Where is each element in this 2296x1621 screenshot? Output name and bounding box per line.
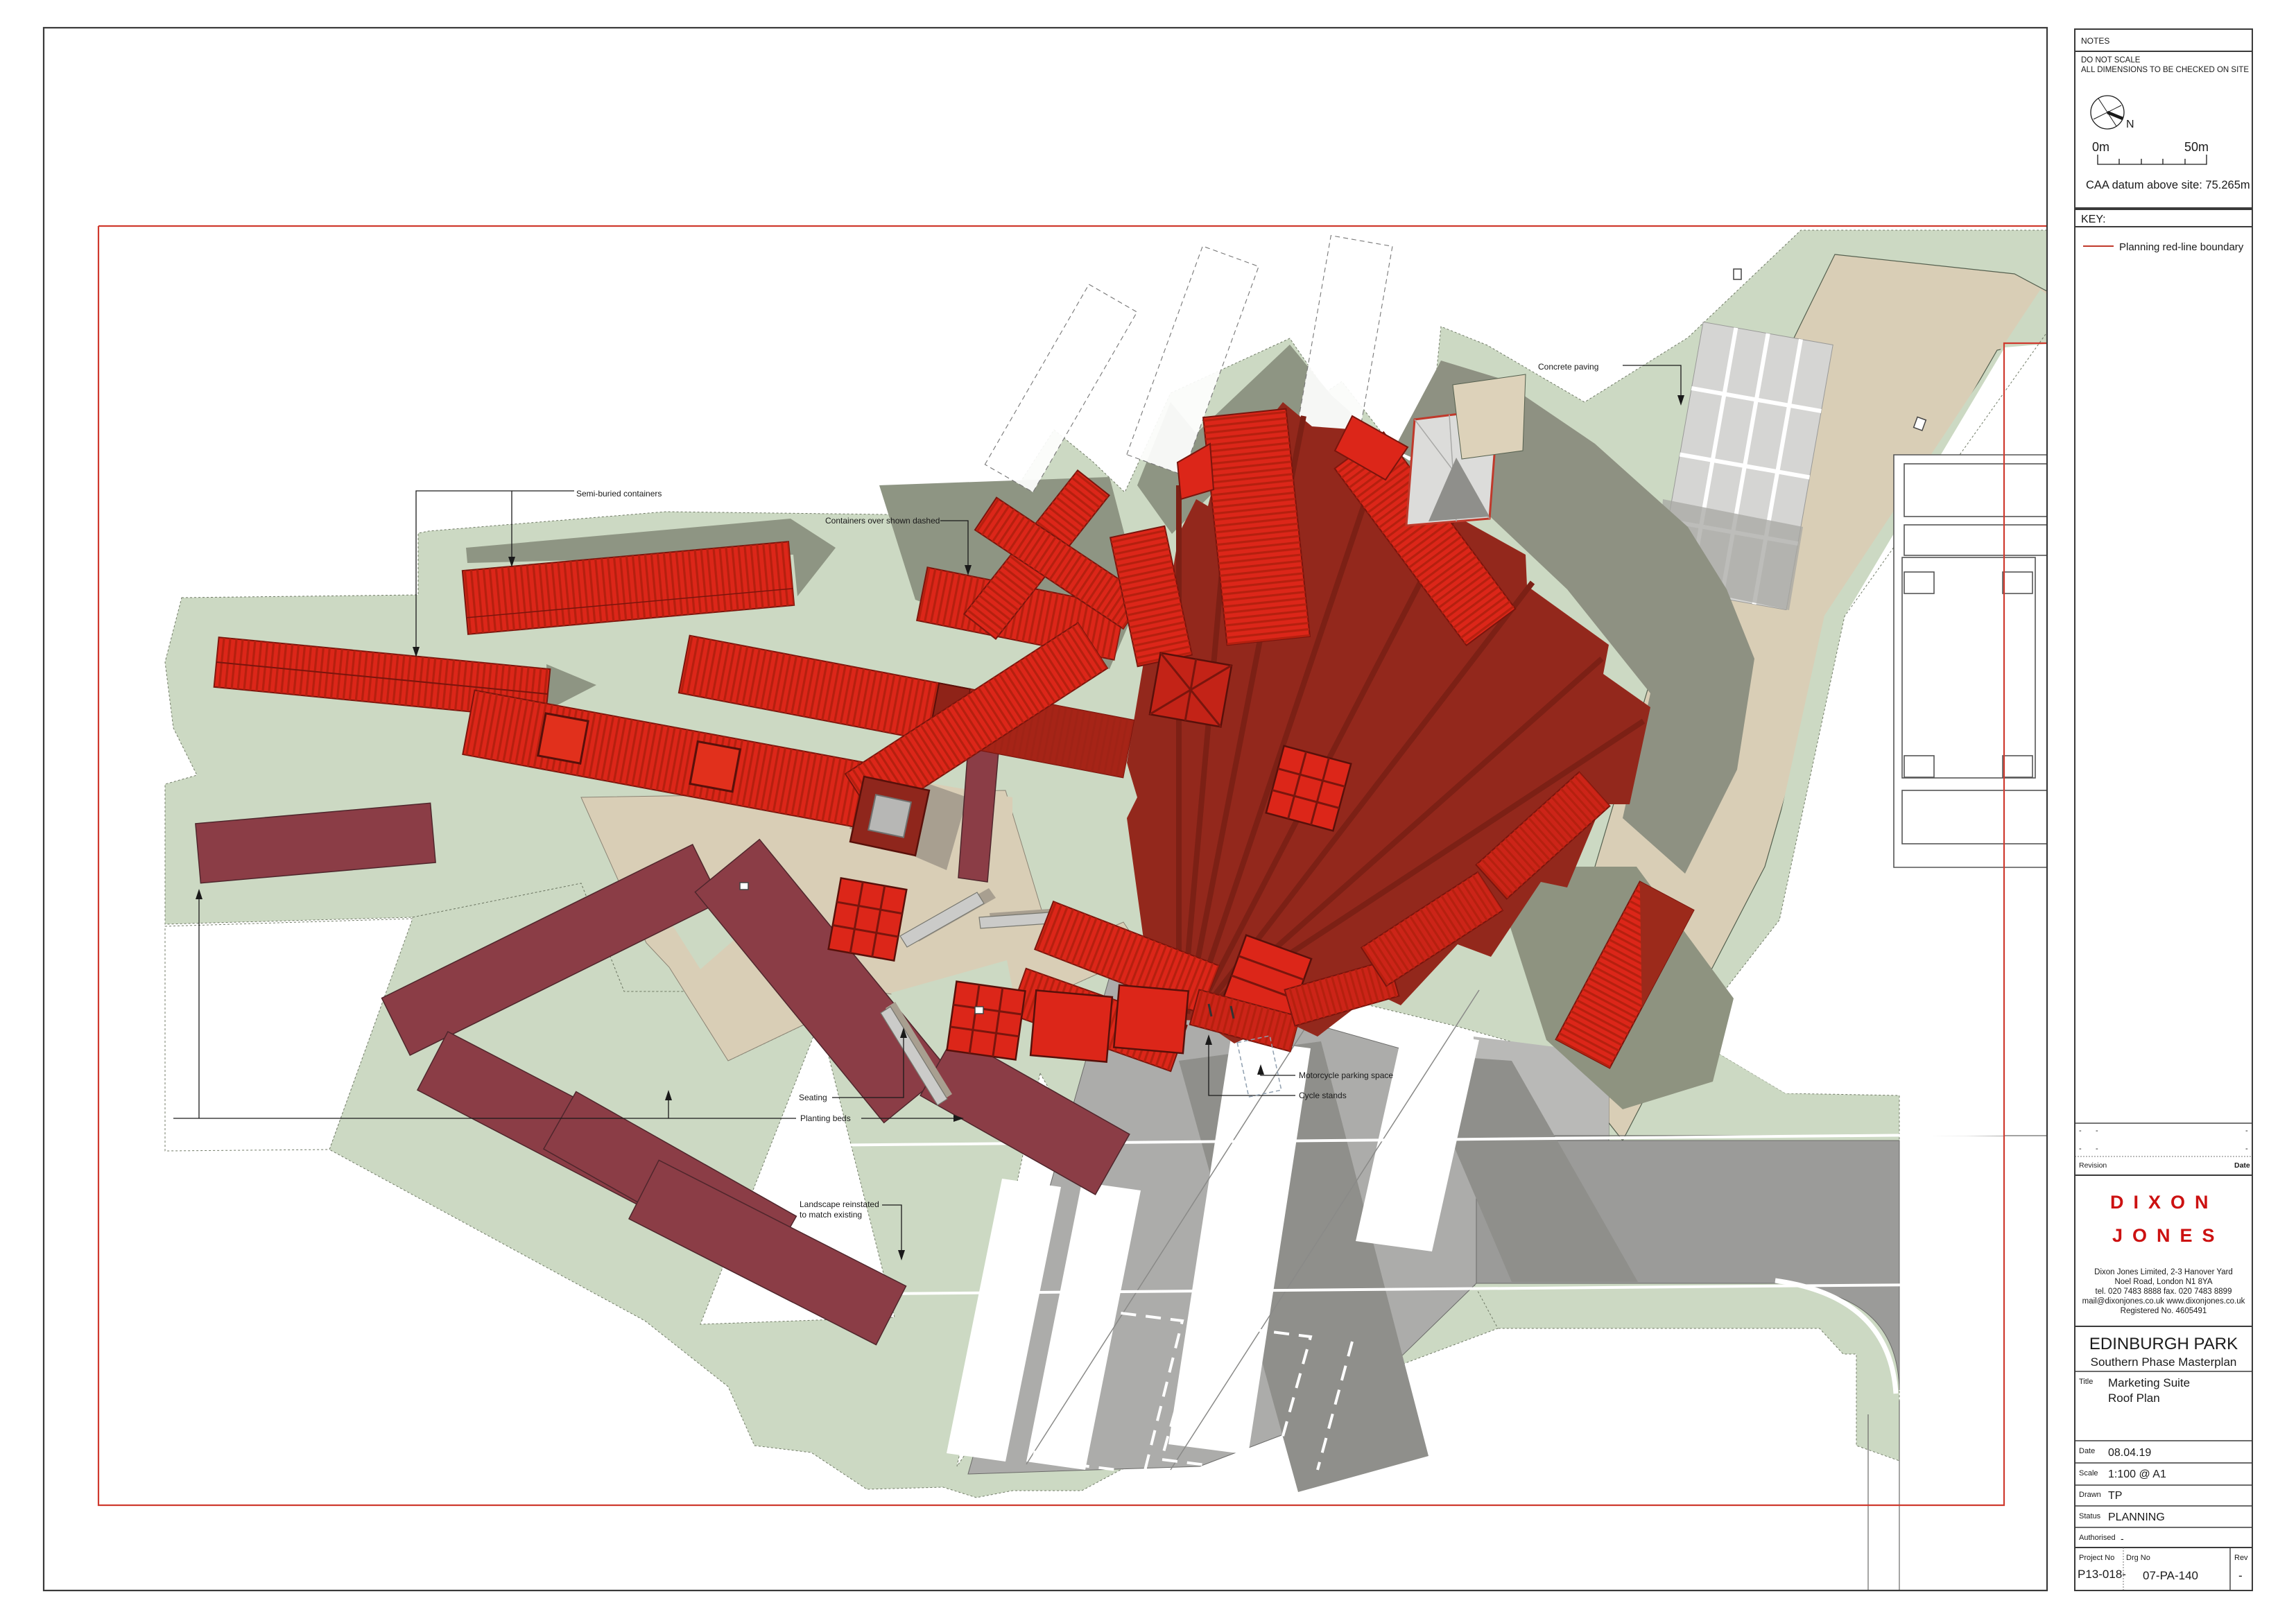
svg-text:Southern Phase Masterplan: Southern Phase Masterplan [2091, 1355, 2237, 1369]
svg-text:N: N [2126, 119, 2134, 130]
svg-text:Semi-buried containers: Semi-buried containers [576, 489, 662, 499]
svg-text:07-PA-140: 07-PA-140 [2143, 1569, 2198, 1582]
svg-text:mail@dixonjones.co.uk www.dix: mail@dixonjones.co.uk www.dixonjones.co.… [2082, 1297, 2245, 1306]
svg-text:Status: Status [2079, 1512, 2101, 1520]
svg-text:Noel Road, London N1 8YA: Noel Road, London N1 8YA [2114, 1278, 2212, 1286]
svg-text:DIXON: DIXON [2110, 1192, 2218, 1213]
svg-text:08.04.19: 08.04.19 [2108, 1447, 2151, 1459]
svg-text:Date: Date [2234, 1161, 2250, 1170]
svg-text:CAA datum above site: 75.265m: CAA datum above site: 75.265m [2086, 179, 2250, 191]
svg-text:Drawn: Drawn [2079, 1491, 2101, 1499]
svg-text:1:100 @ A1: 1:100 @ A1 [2108, 1468, 2166, 1480]
svg-text:-: - [2238, 1569, 2243, 1582]
svg-text:-: - [2245, 1127, 2248, 1135]
svg-text:tel. 020 7483 8888 fax. 020 7: tel. 020 7483 8888 fax. 020 7483 8899 [2096, 1288, 2232, 1296]
svg-text:Concrete paving: Concrete paving [1538, 362, 1598, 372]
svg-text:-: - [2079, 1127, 2082, 1135]
svg-text:50m: 50m [2184, 140, 2209, 154]
svg-text:DO NOT SCALE: DO NOT SCALE [2081, 56, 2141, 64]
svg-text:Seating: Seating [799, 1093, 827, 1102]
svg-text:-: - [2245, 1145, 2248, 1153]
svg-text:TP: TP [2108, 1490, 2122, 1502]
svg-text:PLANNING: PLANNING [2108, 1511, 2165, 1523]
svg-text:Rev: Rev [2234, 1554, 2248, 1562]
svg-text:Roof Plan: Roof Plan [2108, 1392, 2160, 1405]
svg-text:Containers over shown dashed: Containers over shown dashed [825, 516, 940, 526]
svg-text:Drg No: Drg No [2126, 1554, 2150, 1562]
svg-text:Authorised: Authorised [2079, 1534, 2116, 1542]
svg-text:KEY:: KEY: [2081, 214, 2106, 225]
svg-text:0m: 0m [2092, 140, 2109, 154]
svg-text:Scale: Scale [2079, 1469, 2098, 1477]
svg-text:P13-018-: P13-018- [2078, 1568, 2126, 1581]
svg-text:Planting beds: Planting beds [800, 1113, 851, 1123]
svg-text:-: - [2079, 1145, 2082, 1153]
svg-text:JONES: JONES [2112, 1225, 2225, 1246]
svg-text:Landscape reinstated: Landscape reinstated [800, 1199, 879, 1209]
svg-text:Date: Date [2079, 1447, 2095, 1455]
svg-text:Project No: Project No [2079, 1554, 2114, 1562]
svg-text:NOTES: NOTES [2081, 36, 2109, 46]
svg-text:Title: Title [2079, 1378, 2093, 1386]
svg-text:Revision: Revision [2079, 1161, 2107, 1170]
svg-text:Cycle stands: Cycle stands [1299, 1091, 1347, 1100]
svg-text:Registered No. 4605491: Registered No. 4605491 [2121, 1307, 2207, 1315]
svg-text:-: - [2121, 1533, 2124, 1544]
svg-text:ALL DIMENSIONS TO BE CHECKED O: ALL DIMENSIONS TO BE CHECKED ON SITE [2081, 66, 2249, 74]
svg-text:Planning red-line boundary: Planning red-line boundary [2119, 241, 2244, 253]
svg-text:Dixon Jones Limited, 2-3 Hanov: Dixon Jones Limited, 2-3 Hanover Yard [2094, 1268, 2233, 1276]
svg-text:-: - [2096, 1145, 2098, 1153]
svg-text:Marketing Suite: Marketing Suite [2108, 1376, 2190, 1389]
svg-text:to match existing: to match existing [800, 1210, 862, 1220]
svg-text:-: - [2096, 1127, 2098, 1135]
svg-text:Motorcycle parking space: Motorcycle parking space [1299, 1070, 1393, 1080]
svg-text:EDINBURGH PARK: EDINBURGH PARK [2089, 1335, 2238, 1353]
